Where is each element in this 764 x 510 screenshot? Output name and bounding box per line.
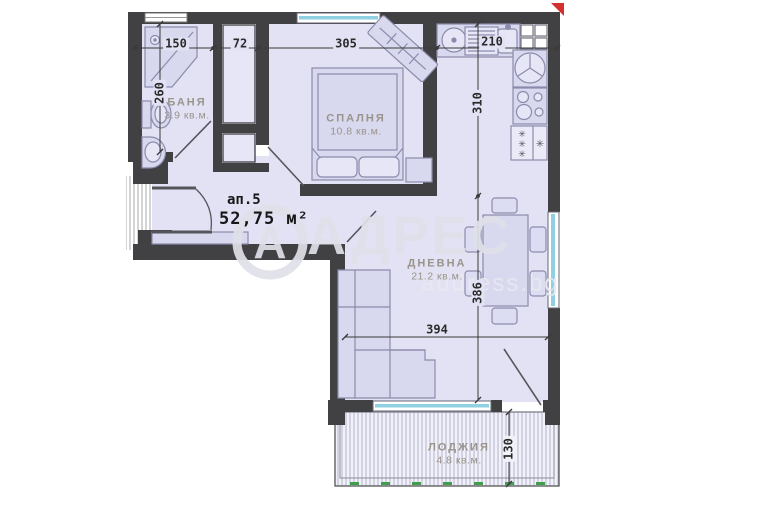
- bathroom-label: БАНЯ 3.9 кв.м.: [164, 97, 209, 122]
- dim-living-depth: 386: [472, 280, 485, 306]
- hall-cabinet-icon: [152, 232, 248, 244]
- apartment-number: ап.5: [227, 192, 309, 208]
- living-room-label: ДНЕВНА 21.2 кв.м.: [408, 258, 467, 283]
- bathroom-window: [145, 13, 187, 22]
- room-area: 21.2 кв.м.: [408, 271, 467, 283]
- floor-plan-drawing: ✳ ✳ ✳ ✳: [0, 0, 764, 510]
- room-name: СПАЛНЯ: [326, 113, 386, 125]
- dim-closet-width: 72: [231, 38, 249, 51]
- dim-loggia-depth: 130: [503, 436, 516, 462]
- apartment-area: 52,75 м²: [219, 209, 309, 229]
- dim-living-width: 394: [424, 324, 450, 337]
- room-name: ДНЕВНА: [408, 258, 467, 270]
- living-window: [373, 401, 491, 411]
- bedroom-window: [297, 13, 380, 23]
- bedroom-label: СПАЛНЯ 10.8 кв.м.: [326, 113, 386, 138]
- svg-text:✳: ✳: [518, 139, 526, 149]
- room-name: ЛОДЖИЯ: [428, 442, 490, 454]
- loggia-label: ЛОДЖИЯ 4.8 кв.м.: [428, 442, 490, 467]
- svg-text:✳: ✳: [536, 139, 544, 150]
- room-name: БАНЯ: [164, 97, 209, 109]
- nightstand-icon: [406, 158, 432, 182]
- dim-bathroom-depth: 260: [154, 80, 167, 106]
- svg-text:✳: ✳: [518, 149, 526, 159]
- dim-bathroom-width: 150: [163, 38, 189, 51]
- floor-plan-page: ✳ ✳ ✳ ✳: [0, 0, 764, 510]
- room-area: 3.9 кв.м.: [164, 110, 209, 122]
- dim-kitchen-width: 210: [479, 36, 505, 49]
- dining-table-icon: [483, 215, 528, 306]
- apartment-title: ап.5 52,75 м²: [219, 192, 309, 229]
- round-sink-icon: [513, 50, 547, 87]
- cooktop-icon: [513, 88, 547, 124]
- fridge-freezer-icon: ✳ ✳ ✳ ✳: [511, 126, 547, 160]
- dining-window: [548, 212, 559, 308]
- dim-bedroom-width: 305: [333, 38, 359, 51]
- room-area: 10.8 кв.м.: [326, 126, 386, 138]
- svg-text:✳: ✳: [518, 129, 526, 139]
- room-area: 4.8 кв.м.: [428, 455, 490, 467]
- dim-kitchen-depth: 310: [472, 90, 485, 116]
